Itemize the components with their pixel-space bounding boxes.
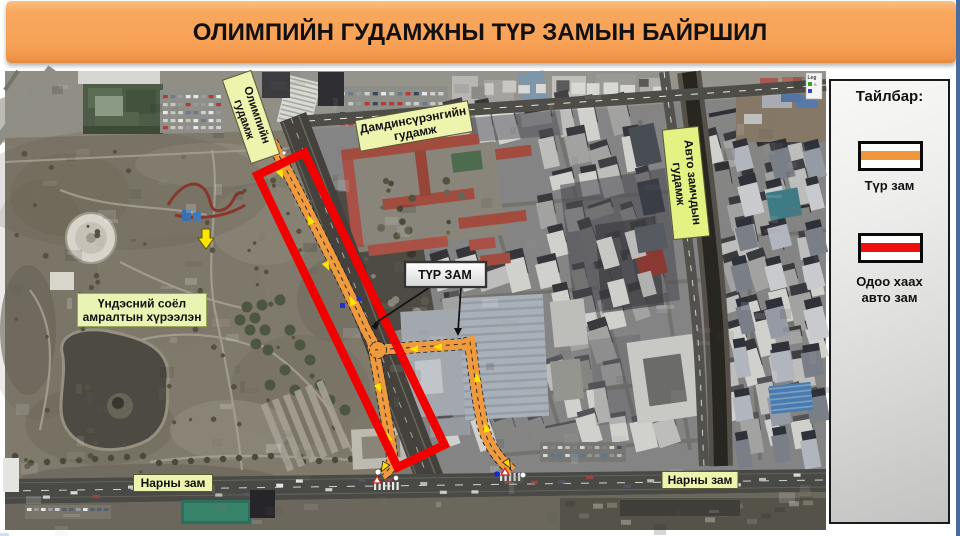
svg-text:B: B — [814, 82, 817, 87]
svg-text:Leg: Leg — [808, 75, 817, 81]
svg-text:Нарны зам: Нарны зам — [668, 473, 733, 487]
svg-text:ТҮР ЗАМ: ТҮР ЗАМ — [418, 268, 472, 282]
svg-text:Үндэсний соёл: Үндэсний соёл — [98, 296, 186, 310]
svg-text:Нарны зам: Нарны зам — [141, 476, 206, 490]
svg-text:амралтын хүрээлэн: амралтын хүрээлэн — [83, 310, 202, 324]
